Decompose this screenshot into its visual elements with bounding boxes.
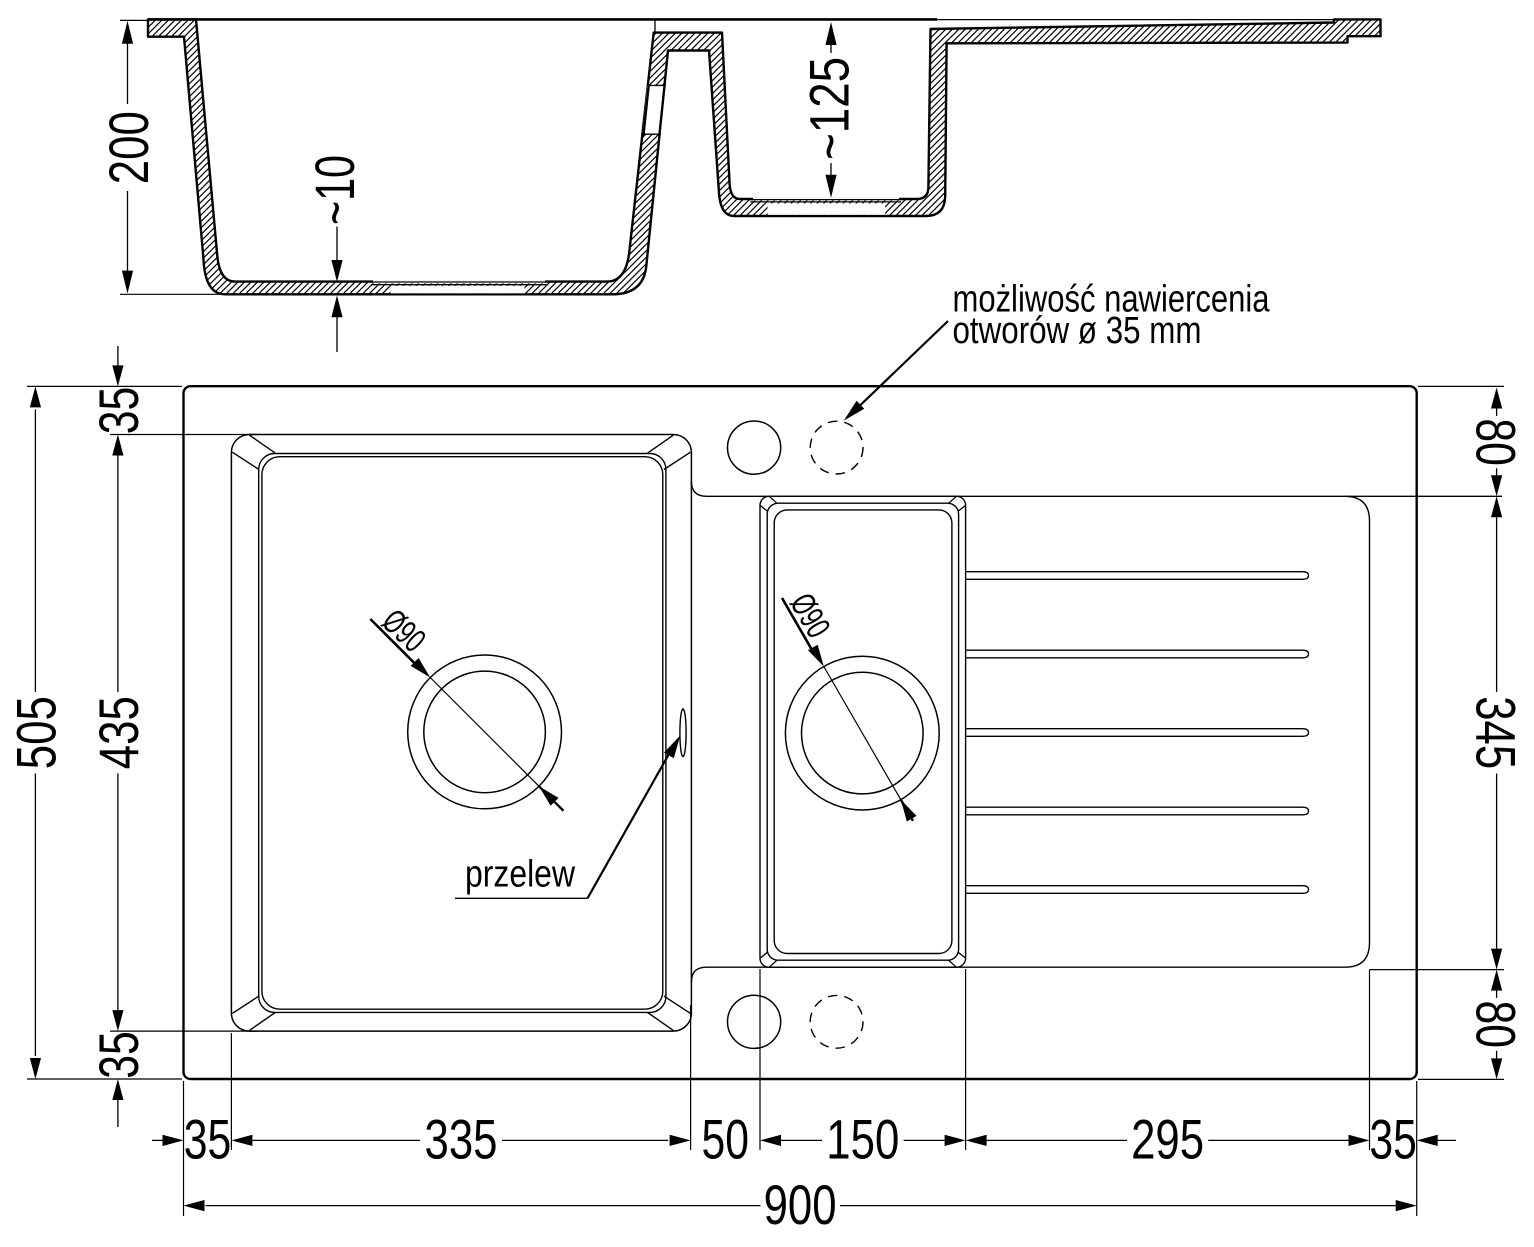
- svg-text:35: 35: [88, 387, 150, 435]
- svg-text:150: 150: [826, 1109, 899, 1171]
- svg-text:80: 80: [1464, 1001, 1526, 1049]
- svg-text:~125: ~125: [799, 57, 861, 160]
- svg-text:otworów ø 35 mm: otworów ø 35 mm: [953, 310, 1202, 352]
- svg-text:345: 345: [1464, 696, 1526, 769]
- svg-text:przelew: przelew: [465, 854, 575, 896]
- svg-text:~10: ~10: [304, 155, 366, 225]
- svg-text:200: 200: [98, 111, 160, 184]
- svg-text:295: 295: [1131, 1109, 1204, 1171]
- svg-text:900: 900: [764, 1174, 837, 1236]
- svg-text:50: 50: [702, 1109, 750, 1171]
- svg-text:35: 35: [1369, 1109, 1417, 1171]
- svg-text:35: 35: [184, 1109, 232, 1171]
- svg-text:335: 335: [425, 1109, 498, 1171]
- svg-text:35: 35: [88, 1031, 150, 1079]
- svg-text:80: 80: [1464, 418, 1526, 466]
- svg-text:505: 505: [6, 696, 68, 769]
- svg-text:435: 435: [88, 696, 150, 769]
